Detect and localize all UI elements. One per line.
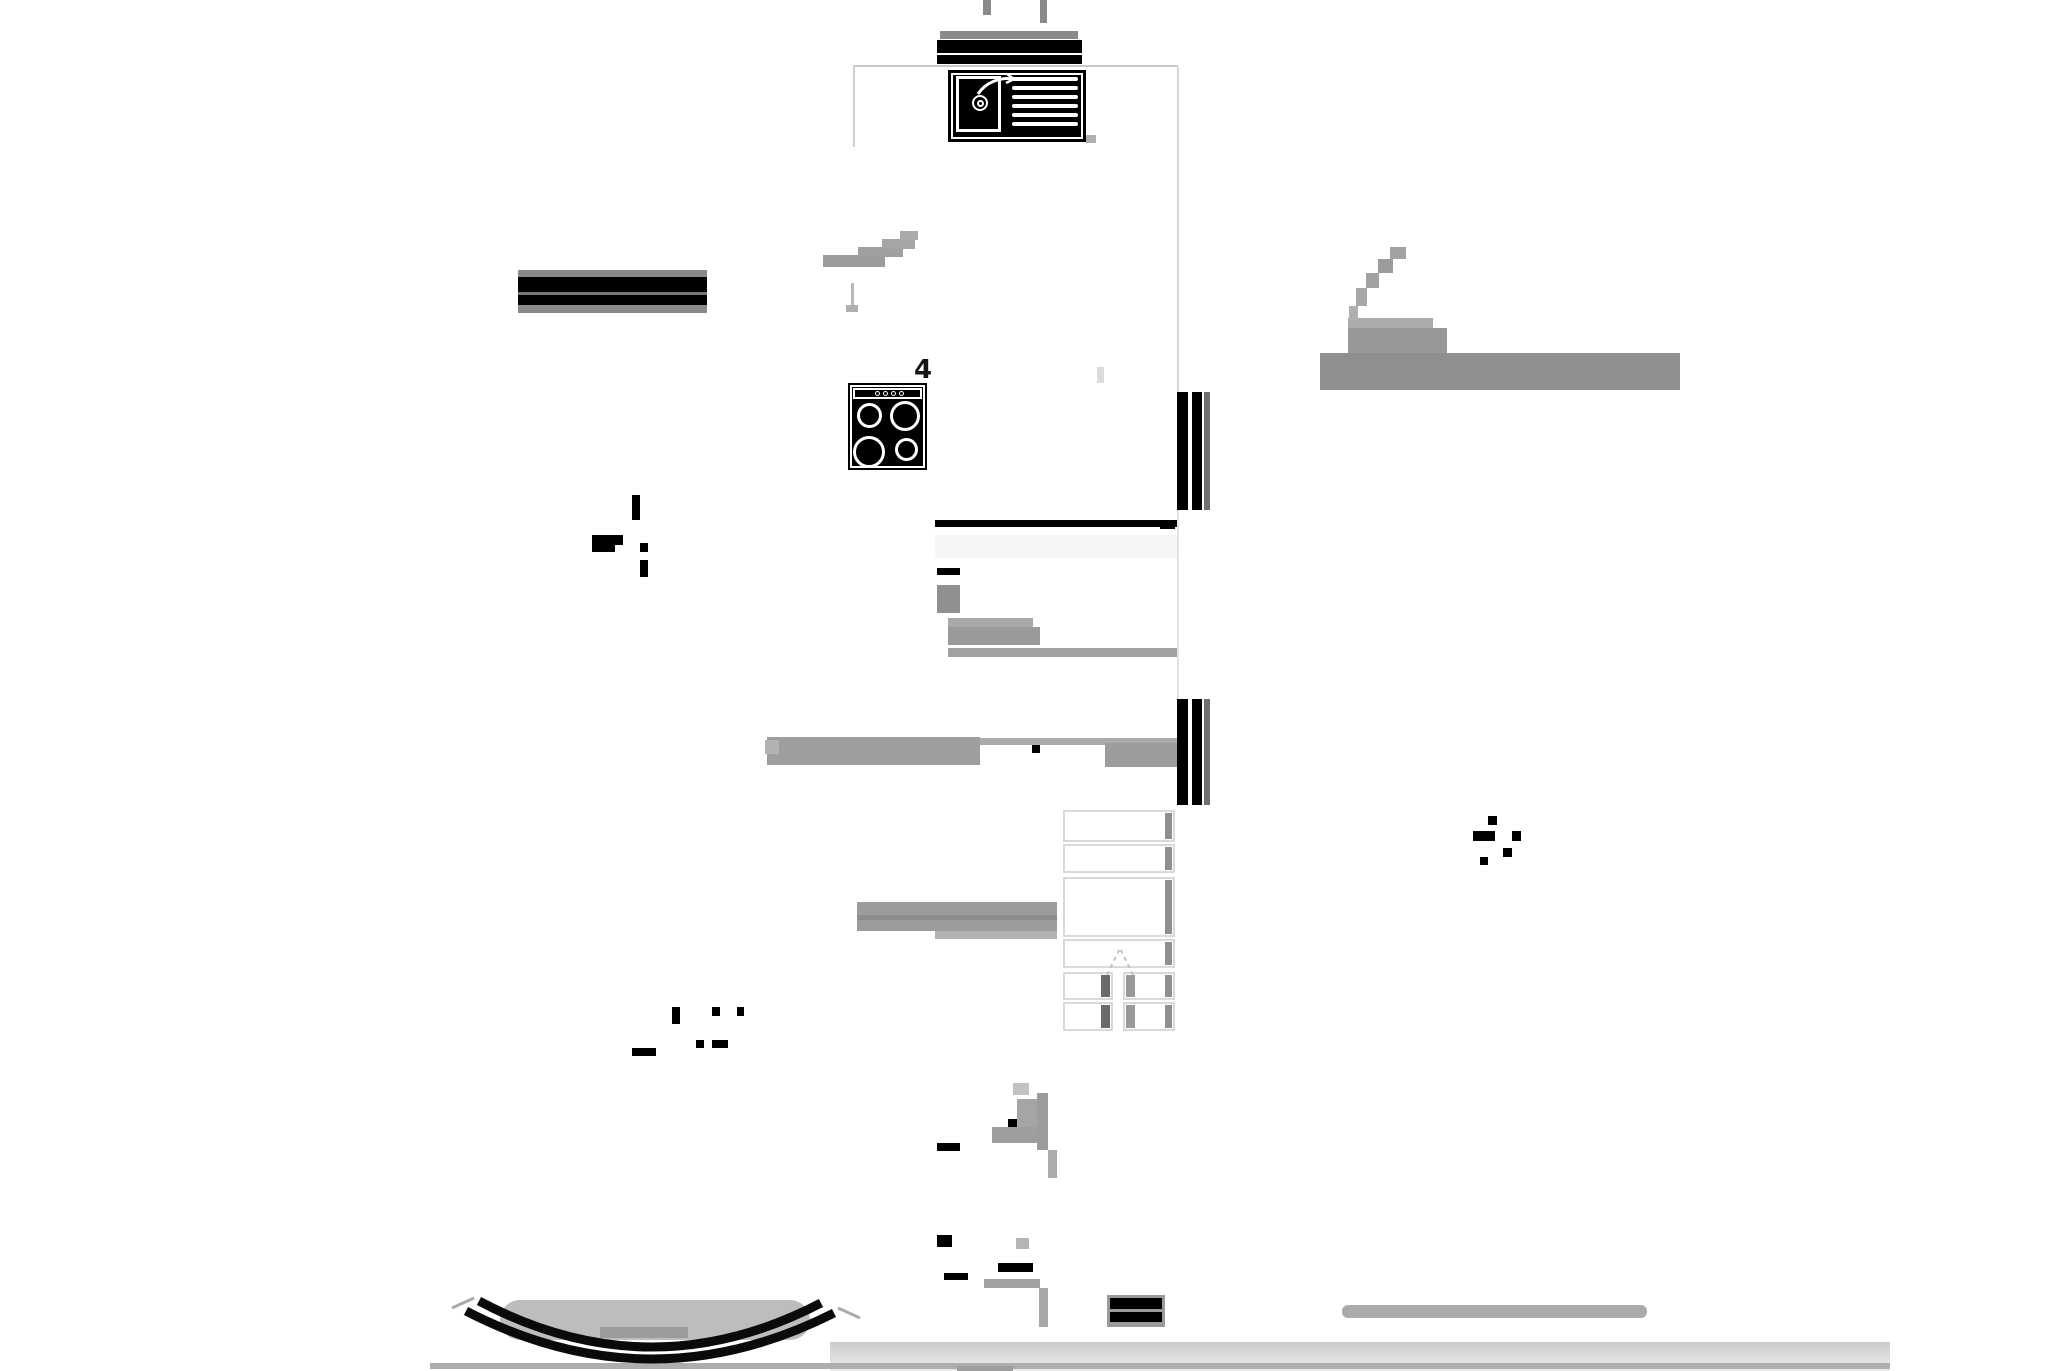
curved-wall-end-tick-left [452,1298,474,1308]
stairs-up-chevron [1107,948,1133,975]
plan-linework [0,0,2057,1371]
curved-wall-end-tick-right [838,1308,860,1318]
floor-plan-canvas: 4 [0,0,2057,1371]
